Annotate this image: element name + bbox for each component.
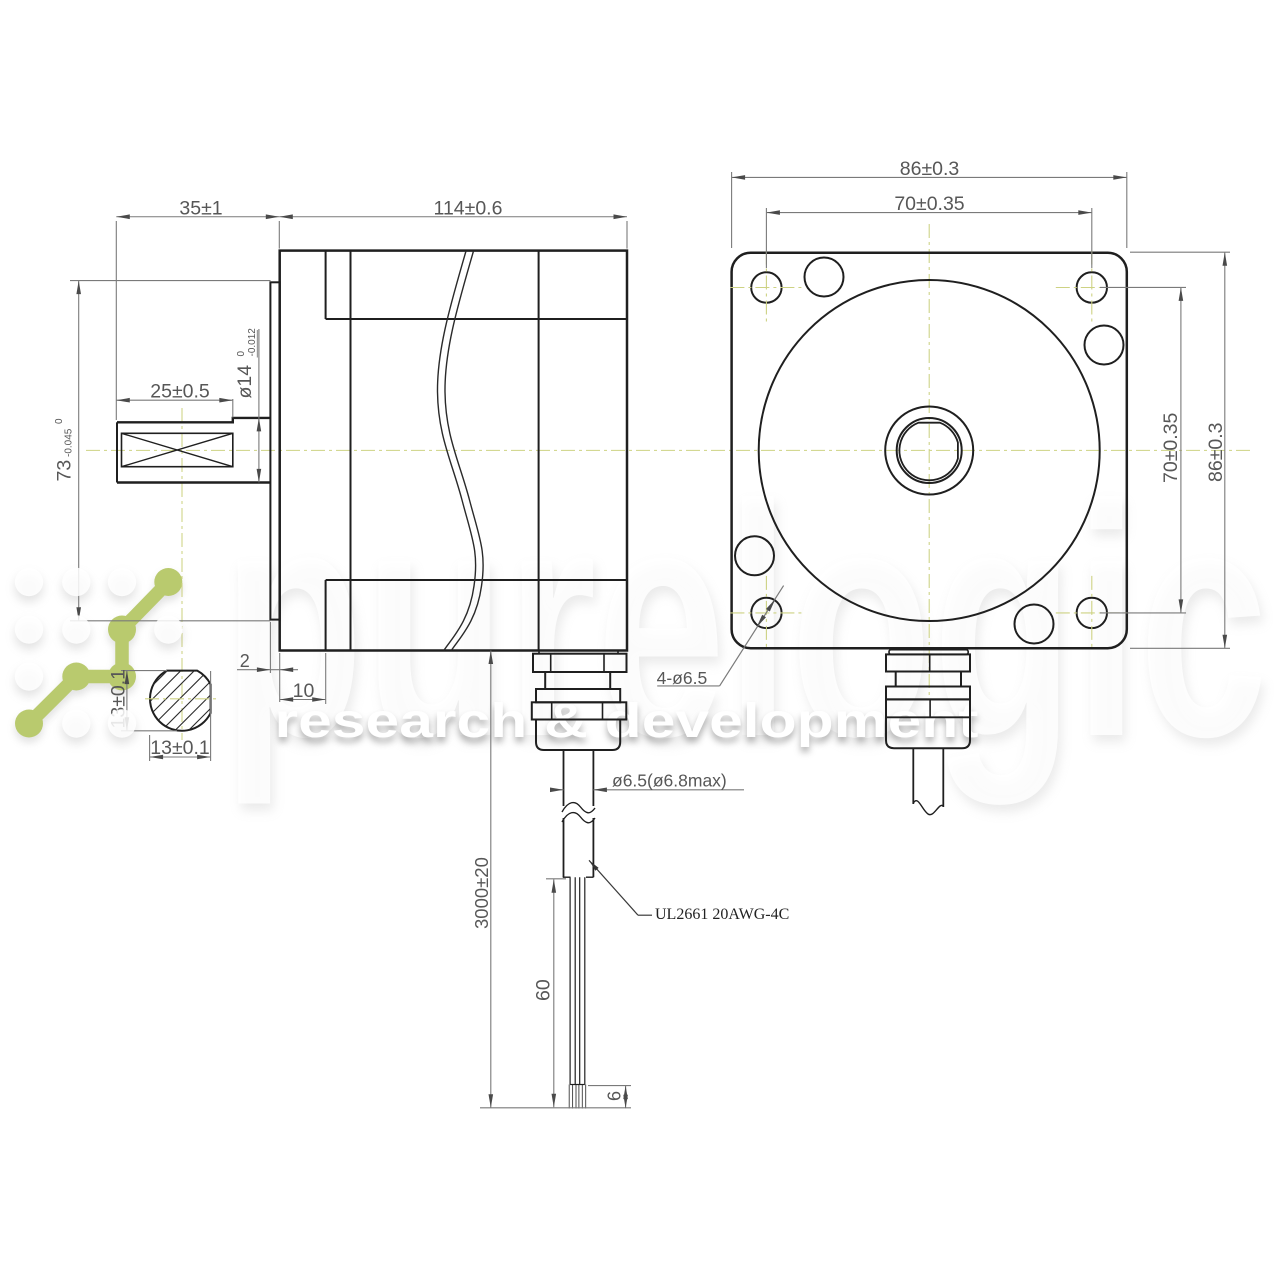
svg-text:4-ø6.5: 4-ø6.5 [657,668,708,688]
svg-text:6: 6 [605,1091,625,1101]
svg-text:10: 10 [293,680,315,702]
svg-text:60: 60 [533,979,555,1001]
svg-text:0: 0 [236,351,247,357]
svg-text:3000±20: 3000±20 [471,857,492,929]
svg-text:73: 73 [54,460,76,482]
svg-text:-0.045: -0.045 [64,428,75,457]
svg-text:114±0.6: 114±0.6 [434,198,503,220]
svg-text:ø6.5(ø6.8max): ø6.5(ø6.8max) [612,771,727,791]
svg-text:13±0.1: 13±0.1 [150,737,210,759]
svg-text:ø14: ø14 [234,365,256,399]
svg-text:70±0.35: 70±0.35 [894,193,964,215]
svg-text:70±0.35: 70±0.35 [1160,413,1182,483]
svg-text:25±0.5: 25±0.5 [150,381,210,403]
svg-text:UL2661 20AWG-4C: UL2661 20AWG-4C [655,906,789,923]
svg-text:35±1: 35±1 [179,198,222,220]
svg-text:2: 2 [240,651,250,671]
svg-text:86±0.3: 86±0.3 [1205,423,1227,483]
svg-text:0: 0 [54,418,65,424]
svg-text:-0.012: -0.012 [247,328,258,357]
svg-text:86±0.3: 86±0.3 [900,158,960,180]
